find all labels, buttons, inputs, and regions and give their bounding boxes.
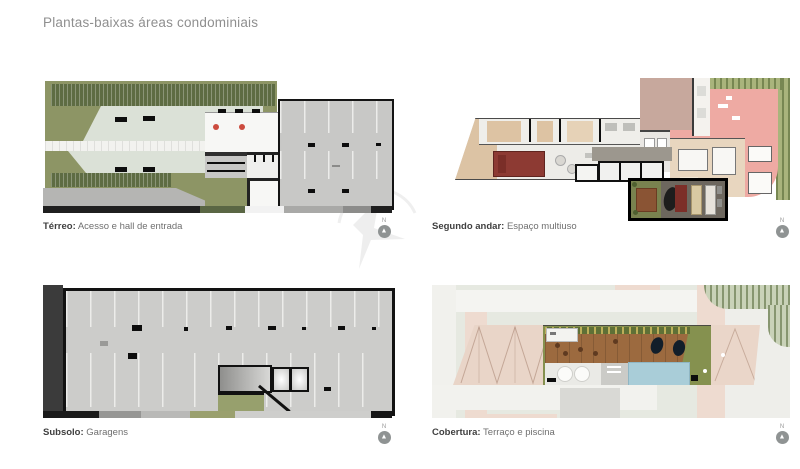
north-label: N (382, 424, 386, 431)
multiuso-room-highlight (628, 178, 728, 221)
floor-mark (100, 341, 108, 346)
road-top (456, 290, 702, 312)
vegetation-strip-right (776, 78, 790, 200)
pool-steps (601, 363, 628, 385)
north-label: N (780, 218, 784, 225)
north-arrow-icon: ▲ (776, 431, 789, 444)
multiuso-green-floor (631, 181, 661, 218)
column-mark (342, 189, 349, 193)
ground-parking (278, 99, 394, 210)
caption-row-cobertura: Cobertura: Terraço e piscina N ▲ (432, 424, 790, 450)
deck-pavilion (546, 328, 578, 342)
column-mark (128, 353, 137, 359)
column-mark (268, 326, 276, 330)
column-mark (226, 326, 232, 330)
planter-tree (213, 124, 219, 130)
parking-stalls-left (66, 353, 171, 407)
plaza-mark (115, 117, 127, 122)
plaza-mark (115, 167, 127, 172)
north-arrow-segundo-andar: N ▲ (774, 218, 790, 238)
pool (628, 362, 690, 387)
hedge-strip-bottom (51, 173, 171, 187)
floorplan-segundo-andar (432, 68, 790, 215)
deck-furniture (578, 347, 583, 352)
floorplan-cobertura (432, 285, 790, 418)
site-boundary-bar (43, 411, 392, 418)
mauve-room (640, 78, 692, 130)
circulation-core (592, 147, 672, 161)
parking-stalls (280, 101, 388, 133)
caption-row-segundo-andar: Segundo andar: Espaço multiuso N ▲ (432, 218, 790, 244)
deck-furniture (593, 351, 598, 356)
pool-mark (691, 375, 698, 381)
column-mark (132, 325, 142, 331)
garden-patch (205, 178, 247, 206)
column-mark (184, 327, 188, 331)
column-mark (372, 327, 376, 330)
deck-furniture (563, 351, 568, 356)
garden-dot (721, 353, 725, 357)
counter (705, 185, 716, 215)
wood-table (636, 188, 657, 212)
north-arrow-terreo: N ▲ (376, 218, 392, 238)
terrace-mark (718, 104, 728, 108)
round-lounger (557, 366, 573, 382)
column-mark (324, 387, 331, 391)
red-sofa (493, 151, 545, 177)
ramp (205, 156, 247, 178)
building-roof (453, 325, 760, 385)
hedge-strip-top (51, 84, 275, 106)
floorplan-terreo (43, 72, 392, 213)
round-lounger (574, 366, 590, 382)
plaza-mark (143, 167, 155, 172)
paving-strip (487, 414, 557, 418)
presentation-page: Plantas-baixas áreas condominiais (0, 0, 800, 469)
north-label: N (382, 218, 386, 225)
wall-mark (218, 109, 226, 113)
upper-rooms (479, 119, 640, 145)
caption-row-terreo: Térreo: Acesso e hall de entrada N ▲ (43, 218, 392, 244)
corridor (692, 78, 710, 136)
north-arrow-icon: ▲ (378, 225, 391, 238)
entrance-hall (205, 112, 281, 153)
column-mark (308, 143, 315, 147)
deck-furniture (613, 339, 618, 344)
page-title: Plantas-baixas áreas condominiais (43, 15, 258, 30)
elevator (575, 164, 599, 182)
planter-tree (239, 124, 245, 130)
garage-floor (63, 288, 395, 416)
caption-subsolo: Subsolo: Garagens (43, 424, 128, 438)
round-table (555, 155, 566, 166)
wall-mark (252, 109, 260, 113)
patio (545, 363, 601, 385)
wall-mark (235, 109, 243, 113)
column-mark (376, 143, 381, 146)
column-mark (302, 327, 306, 330)
hall-room (247, 152, 281, 181)
white-room (748, 172, 772, 194)
plaza-bottom (560, 388, 620, 418)
column-mark (342, 143, 349, 147)
elevator (290, 367, 309, 392)
folded-roof-right (711, 325, 760, 385)
north-arrow-icon: ▲ (776, 225, 789, 238)
north-label: N (780, 424, 784, 431)
north-arrow-icon: ▲ (378, 431, 391, 444)
white-room (748, 146, 772, 162)
long-table (691, 185, 702, 215)
deck-furniture (555, 343, 560, 348)
road-bottom (432, 385, 657, 410)
retaining-wall (43, 285, 63, 418)
red-panel (675, 185, 687, 212)
elevator (272, 367, 291, 392)
terrace-mark (732, 116, 740, 120)
caption-row-subsolo: Subsolo: Garagens N ▲ (43, 424, 392, 450)
column-mark (338, 326, 345, 330)
floor-mark (332, 165, 340, 167)
north-arrow-cobertura: N ▲ (774, 424, 790, 444)
plaza-mark (143, 116, 155, 121)
paving-strip (615, 285, 660, 290)
caption-segundo-andar: Segundo andar: Espaço multiuso (432, 218, 577, 232)
terrace-mark (726, 96, 732, 100)
floorplan-subsolo (43, 285, 392, 418)
north-arrow-subsolo: N ▲ (376, 424, 392, 444)
parking-stalls-top (66, 291, 386, 327)
garden-dot (703, 369, 707, 373)
site-boundary-bar (43, 206, 392, 213)
caption-cobertura: Cobertura: Terraço e piscina (432, 424, 555, 438)
column-mark (308, 189, 315, 193)
caption-terreo: Térreo: Acesso e hall de entrada (43, 218, 182, 232)
